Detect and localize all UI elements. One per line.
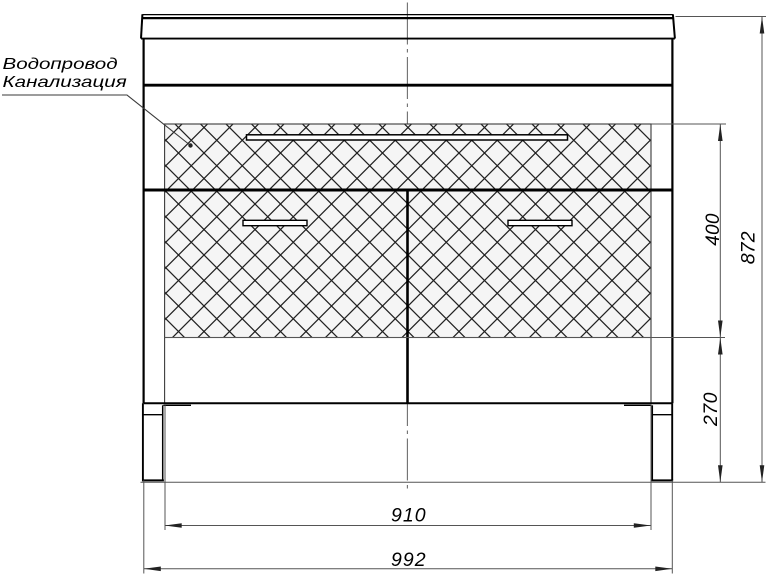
svg-text:400: 400 bbox=[703, 213, 724, 246]
svg-text:270: 270 bbox=[700, 392, 722, 427]
svg-text:Водопровод: Водопровод bbox=[3, 55, 118, 72]
svg-text:Канализация: Канализация bbox=[3, 72, 128, 90]
svg-text:910: 910 bbox=[391, 505, 427, 527]
svg-text:992: 992 bbox=[391, 549, 427, 571]
svg-text:872: 872 bbox=[738, 231, 760, 264]
